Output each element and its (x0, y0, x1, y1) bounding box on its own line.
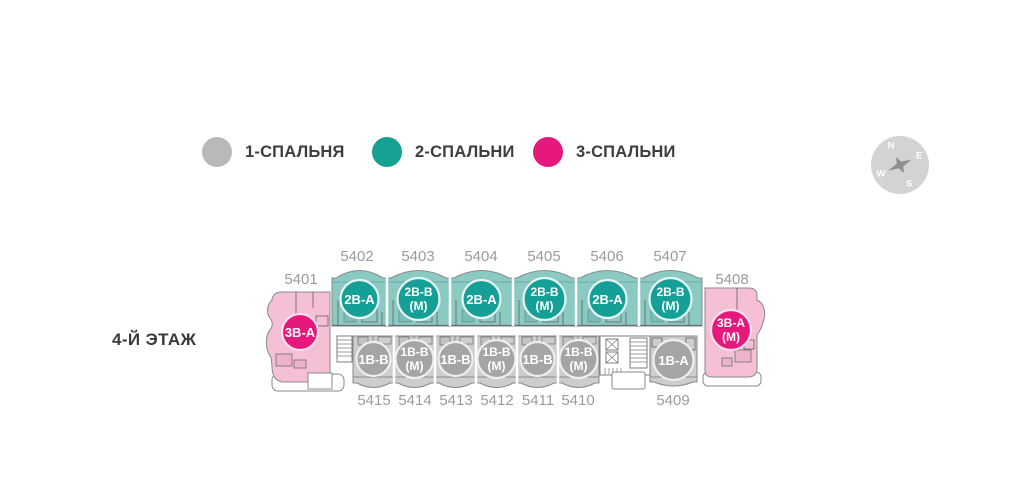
compass-north-label: N (888, 141, 895, 152)
svg-text:2В-А: 2В-А (592, 292, 623, 307)
unit-badge-5413[interactable]: 1В-В (439, 342, 473, 376)
compass-east-label: E (916, 151, 922, 162)
svg-text:(М): (М) (570, 359, 588, 373)
svg-text:1В-В: 1В-В (482, 345, 510, 359)
svg-text:(М): (М) (662, 299, 680, 313)
unit-badge-5409[interactable]: 1В-А (654, 340, 694, 380)
legend-dot-2bedroom (372, 137, 402, 167)
legend-label-3bedroom: 3-СПАЛЬНИ (576, 143, 676, 162)
svg-text:(М): (М) (722, 330, 740, 344)
unit-number-5402: 5402 (340, 248, 373, 265)
unit-number-5410: 5410 (561, 392, 594, 409)
floor-title: 4-Й ЭТАЖ (112, 330, 196, 350)
legend-item-2bedroom: 2-СПАЛЬНИ (372, 137, 515, 167)
entrance-lobby (612, 372, 645, 389)
svg-text:2В-В: 2В-В (656, 285, 684, 299)
svg-text:2В-А: 2В-А (466, 292, 497, 307)
legend-dot-1bedroom (202, 137, 232, 167)
unit-number-5409: 5409 (656, 392, 689, 409)
unit-number-5401: 5401 (284, 271, 317, 288)
unit-number-5411: 5411 (522, 392, 554, 409)
unit-number-5404: 5404 (464, 248, 497, 265)
unit-number-5407: 5407 (653, 248, 686, 265)
legend-item-3bedroom: 3-СПАЛЬНИ (533, 137, 676, 167)
unit-badge-5406[interactable]: 2В-А (589, 280, 627, 318)
compass-star-icon (871, 136, 929, 194)
svg-text:2В-В: 2В-В (530, 285, 558, 299)
stairwell-mid (630, 338, 647, 368)
unit-badge-5404[interactable]: 2В-А (463, 280, 501, 318)
unit-badge-5402[interactable]: 2В-А (341, 280, 379, 318)
unit-number-5415: 5415 (357, 392, 390, 409)
unit-number-5412: 5412 (480, 392, 513, 409)
unit-interior-detail (276, 354, 292, 366)
unit-number-5408: 5408 (715, 271, 748, 288)
unit-number-5406: 5406 (590, 248, 623, 265)
legend-dot-3bedroom (533, 137, 563, 167)
svg-text:1В-В: 1В-В (522, 352, 552, 367)
svg-text:1В-В: 1В-В (440, 352, 470, 367)
floor-plan-page: 1-СПАЛЬНЯ 2-СПАЛЬНИ 3-СПАЛЬНИ N E S W 4-… (0, 0, 1024, 503)
svg-text:3В-А: 3В-А (717, 316, 745, 330)
svg-text:(М): (М) (536, 299, 554, 313)
building-notch (308, 373, 332, 389)
unit-badge-5412[interactable]: 1В-В (М) (478, 340, 516, 378)
unit-badge-5411[interactable]: 1В-В (521, 342, 555, 376)
svg-text:3В-А: 3В-А (285, 325, 316, 340)
svg-text:1В-А: 1В-А (658, 353, 689, 368)
unit-number-5413: 5413 (439, 392, 472, 409)
svg-text:1В-В: 1В-В (358, 352, 388, 367)
unit-interior-detail (735, 350, 751, 362)
unit-interior-detail (722, 358, 732, 366)
unit-badge-5405[interactable]: 2В-В (М) (524, 278, 566, 320)
legend-label-2bedroom: 2-СПАЛЬНИ (415, 143, 515, 162)
unit-number-5403: 5403 (401, 248, 434, 265)
svg-text:1В-В: 1В-В (400, 345, 428, 359)
unit-badge-5401[interactable]: 3В-А (282, 314, 318, 350)
legend-label-1bedroom: 1-СПАЛЬНЯ (245, 143, 345, 162)
unit-badge-5415[interactable]: 1В-В (357, 342, 391, 376)
unit-badge-5410[interactable]: 1В-В (М) (560, 340, 598, 378)
svg-text:(М): (М) (410, 299, 428, 313)
unit-badge-5414[interactable]: 1В-В (М) (396, 340, 434, 378)
unit-badge-5403[interactable]: 2В-В (М) (398, 278, 440, 320)
svg-text:2В-В: 2В-В (404, 285, 432, 299)
floor-plan: 2В-А 2В-В (М) 2В-А 2В-В (М) 2В-А 2В-В (М… (250, 240, 775, 415)
unit-badge-5408[interactable]: 3В-А (М) (711, 310, 751, 350)
svg-text:(М): (М) (406, 359, 424, 373)
unit-interior-detail (294, 360, 306, 368)
unit-number-5405: 5405 (527, 248, 560, 265)
compass-south-label: S (906, 179, 912, 190)
unit-number-5414: 5414 (398, 392, 431, 409)
svg-text:(М): (М) (488, 359, 506, 373)
svg-text:1В-В: 1В-В (564, 345, 592, 359)
unit-badge-5407[interactable]: 2В-В (М) (650, 278, 692, 320)
legend-item-1bedroom: 1-СПАЛЬНЯ (202, 137, 345, 167)
svg-text:2В-А: 2В-А (344, 292, 375, 307)
compass-icon: N E S W (871, 136, 929, 194)
compass-west-label: W (877, 169, 886, 180)
